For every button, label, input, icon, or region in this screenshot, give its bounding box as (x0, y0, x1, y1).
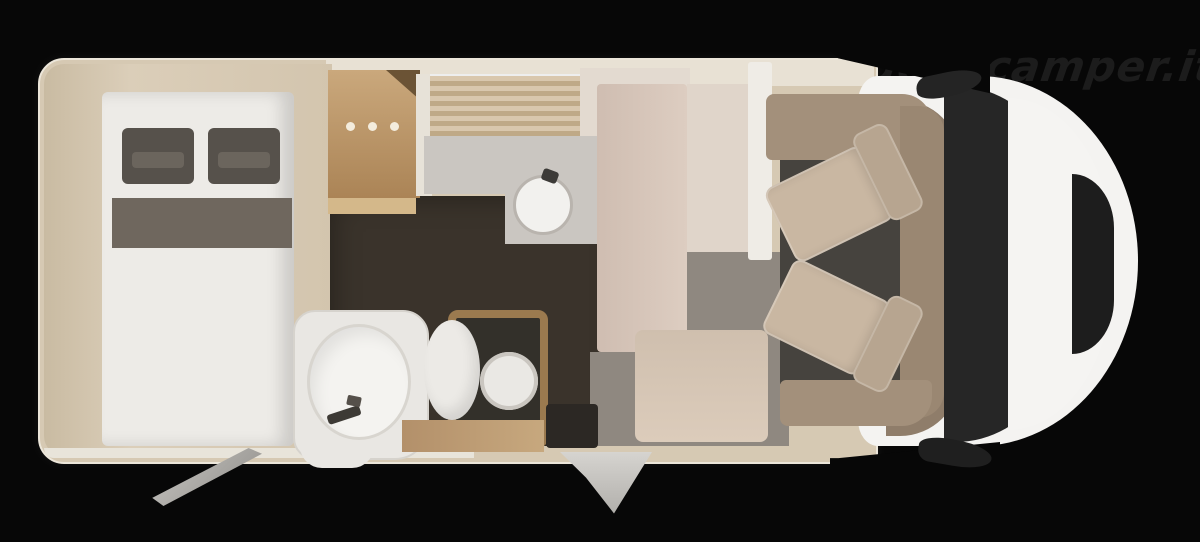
entry-step (556, 452, 656, 516)
shower-outer-bulge (300, 446, 374, 468)
bathroom-partition (597, 84, 687, 352)
burner-dot-icon (346, 122, 355, 131)
bed-runner (112, 198, 292, 248)
cabinet-shelf (328, 198, 416, 214)
cabinet-notch (386, 70, 420, 100)
entry-door-recess (546, 404, 598, 448)
floorplan-canvas: nuovocamper.it (0, 0, 1200, 542)
wall-divider (748, 62, 772, 260)
kitchen-sink (513, 175, 573, 235)
kitchen-cabinet (328, 70, 420, 198)
vanity-base (402, 420, 544, 452)
hood-stripe (1072, 174, 1114, 354)
pillow-left (122, 128, 194, 184)
dinette-bench (635, 330, 768, 442)
cab-surround-bottom (780, 380, 932, 426)
cabinet-column (687, 84, 748, 252)
burner-dot-icon (368, 122, 377, 131)
kitchen-counter (430, 74, 580, 138)
toilet-bowl (480, 352, 538, 410)
pillow-right (208, 128, 280, 184)
shower-basin (307, 324, 411, 440)
burner-dot-icon (390, 122, 399, 131)
washbasin (424, 320, 480, 420)
pillow-crease (132, 152, 184, 168)
cab-surround-front (900, 106, 944, 418)
pillow-crease (218, 152, 270, 168)
